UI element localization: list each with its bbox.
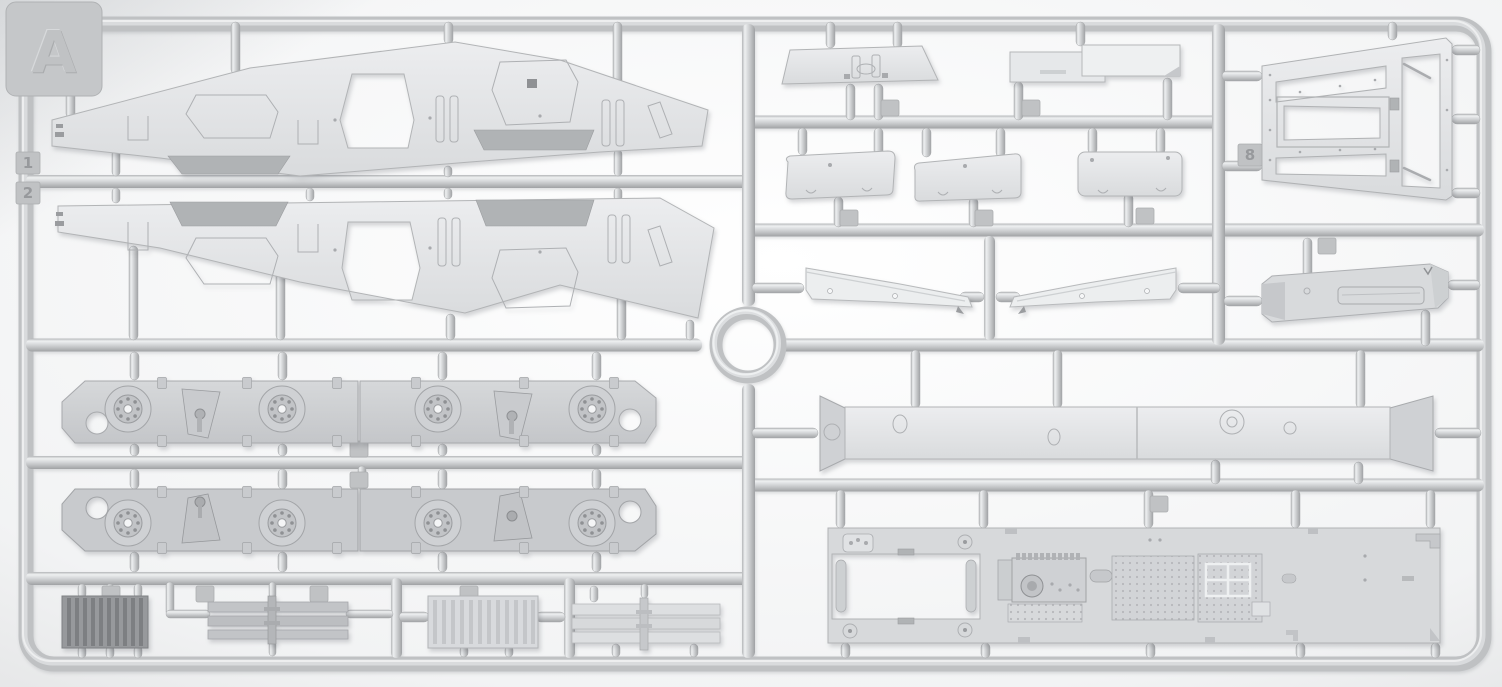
runner-vcenter-upper <box>742 24 755 306</box>
sprue-letter-tab: A A A <box>6 2 102 96</box>
part-wheel-panel-row1-left <box>62 378 358 447</box>
runner-h2-right <box>778 339 1484 352</box>
part-wheel-panel-row1-right <box>360 378 656 447</box>
part-radiator-slatted <box>208 596 348 644</box>
runner-h3 <box>26 572 748 585</box>
runner-vcenter-lower <box>742 384 755 658</box>
part-wheel-panel-row2-right <box>360 487 656 554</box>
part-radiator-dark <box>62 596 148 648</box>
part-mudguard-panel-3 <box>1078 152 1182 196</box>
part-radiator-ribbed-light <box>428 596 538 648</box>
runner-h1 <box>26 175 748 188</box>
part-trapezoid-plate <box>782 46 938 84</box>
edge-tab-8: 8 <box>1238 144 1262 166</box>
sprue-letter: A <box>32 18 77 86</box>
part-wheel-panel-row2-left <box>62 487 358 554</box>
sprue-scene: A A A 1 2 8 <box>0 0 1502 687</box>
sprue-photo: A A A 1 2 8 <box>0 0 1502 687</box>
edge-tab-2: 2 <box>16 182 40 204</box>
svg-text:2: 2 <box>23 184 33 202</box>
runner-hr3 <box>748 479 1484 492</box>
runner-blade-stem <box>984 236 995 340</box>
part-mudguard-panel-1 <box>786 151 895 199</box>
runner-h2-left <box>26 339 702 352</box>
runner-hr2 <box>748 224 1484 237</box>
runner-hr1 <box>748 116 1222 129</box>
svg-text:8: 8 <box>1245 146 1255 164</box>
svg-text:1: 1 <box>23 154 33 172</box>
runner-hmid <box>26 456 748 469</box>
part-panel-slatted-light <box>572 598 720 650</box>
edge-tab-1: 1 <box>16 152 40 174</box>
runner-vright <box>1212 24 1225 345</box>
